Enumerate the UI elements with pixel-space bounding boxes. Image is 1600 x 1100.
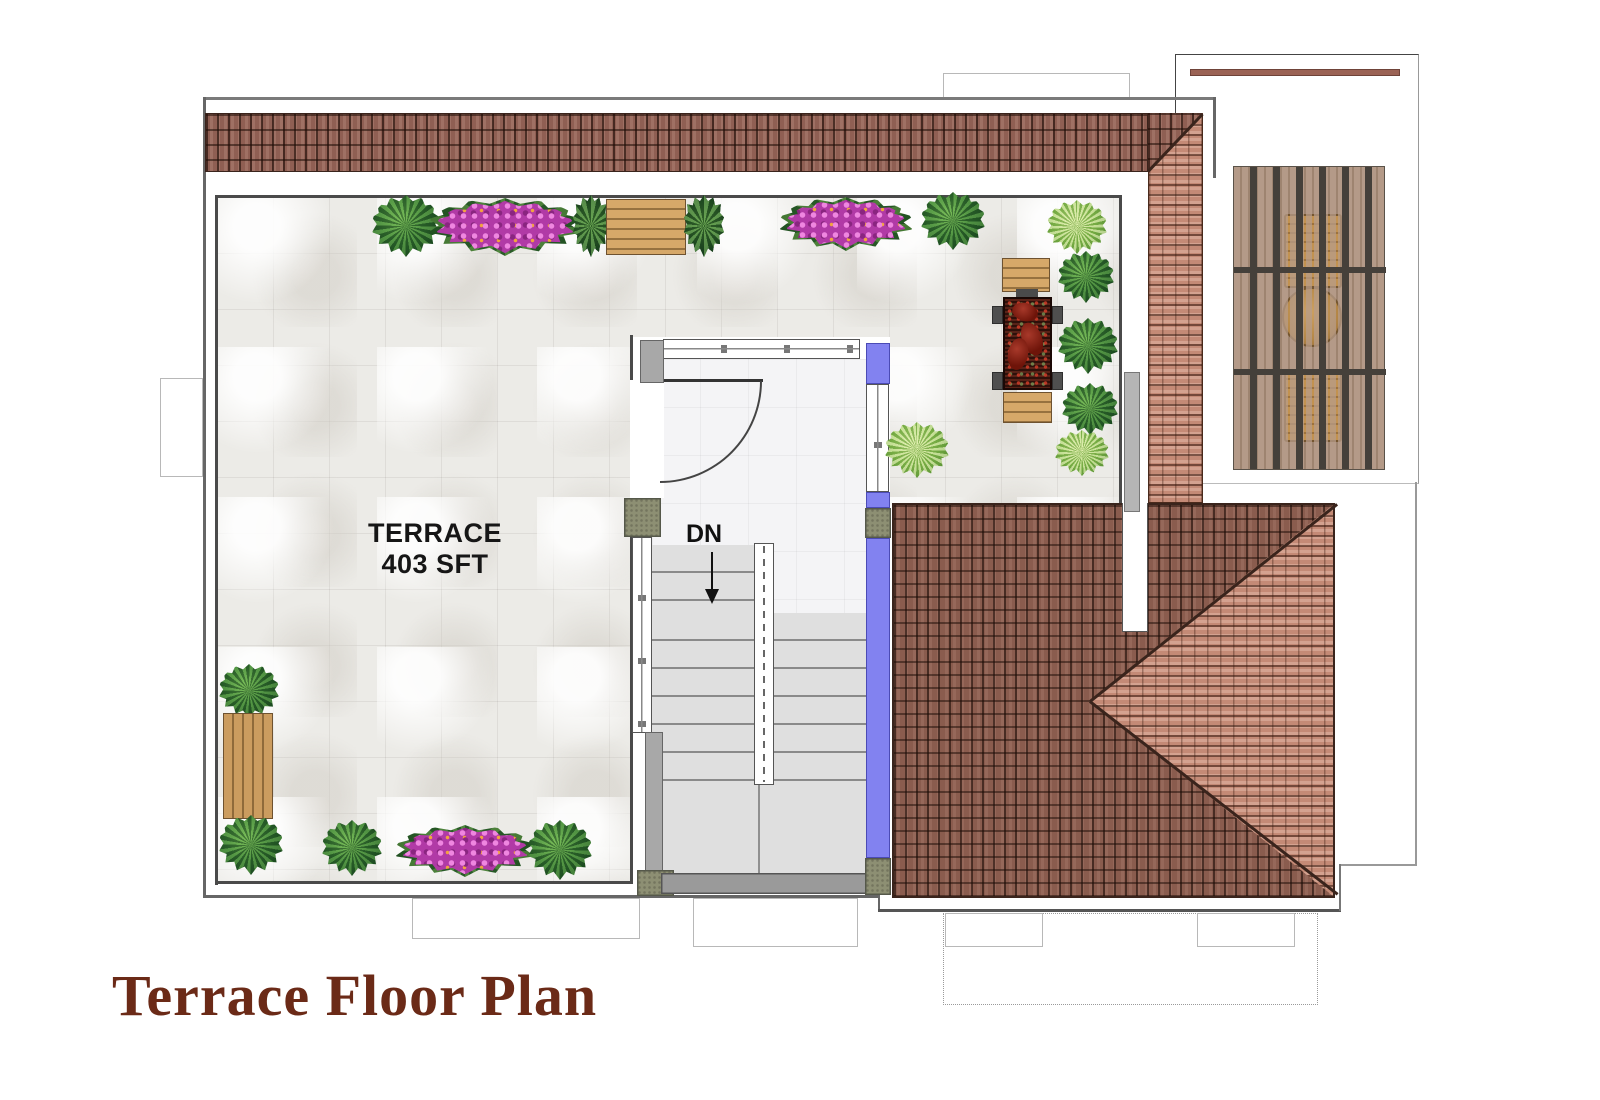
- plan-border-bottom: [203, 895, 880, 898]
- dining-armrest: [1052, 306, 1063, 324]
- right-wing-roof-strip: [1190, 69, 1400, 76]
- down-arrow-line: [711, 552, 713, 590]
- stair-flight-upper: [652, 545, 755, 613]
- roof-frame-bottom: [878, 909, 1341, 912]
- projection-outline-top: [943, 73, 1130, 100]
- stair-railing: [754, 543, 774, 785]
- wall-bottom: [661, 873, 867, 894]
- projection-outline-bottom-2: [693, 898, 858, 947]
- roof-band-top: [205, 113, 1148, 172]
- window-right: [866, 384, 889, 492]
- dining-bench-bottom: [1003, 392, 1052, 423]
- wall-left-lower: [645, 732, 663, 873]
- projection-outline-bottom-4: [1197, 913, 1295, 947]
- pergola-deck: [1233, 166, 1385, 470]
- plan-border-left: [203, 97, 206, 897]
- pillar-left-mid: [624, 498, 661, 537]
- pergola-beam-horizontal: [1234, 267, 1386, 273]
- stair-lower-landing: [652, 783, 866, 873]
- dining-bench-top: [1002, 258, 1050, 292]
- purple-column-top: [866, 343, 890, 384]
- window-top: [663, 339, 860, 359]
- pergola-beam-horizontal: [1234, 369, 1386, 375]
- garden-bench-v: [223, 713, 273, 819]
- dining-armrest: [992, 372, 1003, 390]
- plan-border-top: [203, 97, 1216, 100]
- purple-column-long: [866, 538, 890, 858]
- terrace-border-right: [1119, 195, 1122, 507]
- terrace-border-top: [215, 195, 1122, 198]
- terrace-room-area: 403 SFT: [340, 549, 530, 580]
- plan-border-right-upper: [1213, 97, 1216, 178]
- wall-stub: [1124, 372, 1140, 512]
- terrace-border-bottom: [215, 881, 633, 884]
- projection-outline-left: [160, 378, 203, 477]
- stair-direction-label: DN: [686, 520, 722, 549]
- pergola-beams-vertical: [1234, 167, 1384, 469]
- dining-armrest: [992, 306, 1003, 324]
- projection-outline-bottom-3: [945, 913, 1043, 947]
- pillar-right-bottom: [865, 858, 891, 895]
- right-wing-border-extension: [1415, 482, 1417, 866]
- down-arrow-head-icon: [705, 589, 719, 604]
- door-opening: [630, 380, 664, 498]
- roof-slot-gap: [1122, 503, 1148, 632]
- terrace-floor-plan-canvas: DN TERRACE 403 SFT Terrace Floor Plan: [0, 0, 1600, 1100]
- roof-frame-right: [1339, 864, 1341, 911]
- terrace-border-left: [215, 195, 218, 885]
- dining-armrest: [1052, 372, 1063, 390]
- garden-bench-h: [606, 199, 686, 255]
- roof-margin-bottom-line: [1340, 864, 1417, 866]
- roof-column-vertical: [1148, 113, 1203, 503]
- window-left: [632, 537, 652, 733]
- page-title: Terrace Floor Plan: [112, 962, 597, 1029]
- pillar-right-mid: [865, 508, 891, 538]
- projection-outline-bottom-1: [412, 898, 640, 939]
- wall-corner-top-left: [640, 340, 664, 383]
- terrace-room-label: TERRACE 403 SFT: [340, 518, 530, 580]
- terrace-room-name: TERRACE: [340, 518, 530, 549]
- purple-column-mid: [866, 492, 890, 508]
- dining-bench-top-back: [1016, 289, 1038, 297]
